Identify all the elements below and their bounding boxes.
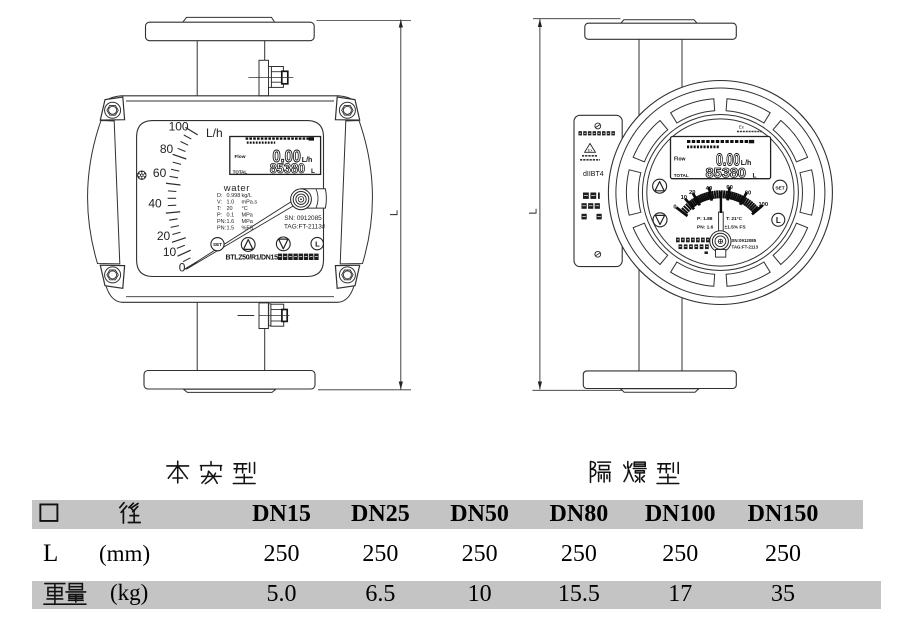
svg-text:85380: 85380 <box>706 165 747 180</box>
svg-text:40: 40 <box>706 186 712 192</box>
svg-text:40: 40 <box>148 197 162 211</box>
svg-text:100: 100 <box>758 202 768 208</box>
svg-text:0: 0 <box>673 205 676 211</box>
svg-text:TOTAL: TOTAL <box>233 170 248 175</box>
svg-text:BTLZ50/R1/DN15: BTLZ50/R1/DN15 <box>226 255 279 262</box>
svg-text:L: L <box>528 208 540 214</box>
svg-text:SET: SET <box>213 242 222 247</box>
svg-text:20: 20 <box>157 229 171 243</box>
svg-text:60: 60 <box>153 166 167 180</box>
svg-text:L: L <box>389 210 401 216</box>
svg-text:P: 1.88: P: 1.88 <box>697 216 713 222</box>
svg-text:SN: 0912085: SN: 0912085 <box>284 215 322 222</box>
svg-text:TAG:FT-2113: TAG:FT-2113 <box>732 244 759 249</box>
svg-text:80: 80 <box>745 190 751 196</box>
svg-text:Flow: Flow <box>235 154 246 160</box>
svg-text:L: L <box>311 168 315 175</box>
svg-text:20: 20 <box>689 190 695 196</box>
svg-text:±1.5% FS: ±1.5% FS <box>725 224 747 230</box>
svg-text:60: 60 <box>726 185 732 191</box>
svg-text:10: 10 <box>163 245 177 259</box>
svg-text:SET: SET <box>775 185 784 191</box>
svg-text:T: 21°C: T: 21°C <box>726 216 743 222</box>
svg-text:0: 0 <box>179 261 186 275</box>
svg-text:L: L <box>776 216 781 225</box>
svg-text:85380: 85380 <box>270 161 305 176</box>
svg-text:100: 100 <box>169 120 189 134</box>
svg-text:10: 10 <box>681 195 687 201</box>
svg-text:SN:0912085: SN:0912085 <box>732 238 757 243</box>
svg-text:Ex: Ex <box>588 147 593 152</box>
svg-text:L: L <box>315 240 320 249</box>
svg-text:TAG:FT-2113#: TAG:FT-2113# <box>284 224 326 231</box>
svg-text:PN: 1.6: PN: 1.6 <box>697 224 714 230</box>
svg-text:D:0.998kg/L: D:0.998kg/L <box>217 193 252 199</box>
svg-text:TOTAL: TOTAL <box>674 173 689 178</box>
svg-text:L/h: L/h <box>206 126 223 140</box>
svg-text:80: 80 <box>160 142 174 156</box>
svg-text:dIIBT4: dIIBT4 <box>583 171 604 178</box>
svg-text:Flow: Flow <box>674 157 685 163</box>
svg-text:L: L <box>753 172 757 179</box>
